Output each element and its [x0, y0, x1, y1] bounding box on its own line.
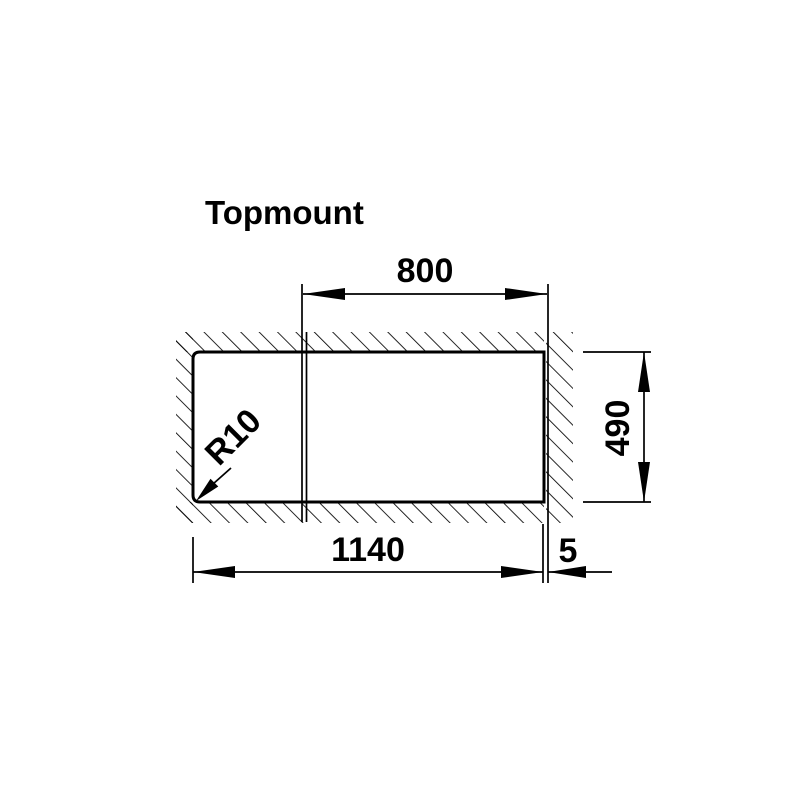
dim-1140-arrow-right [501, 566, 543, 578]
hatch-band-bottom [176, 502, 544, 523]
dim-490-arrow-bottom [638, 462, 650, 502]
dim-800-label: 800 [397, 252, 454, 290]
radius-label: R10 [198, 402, 269, 473]
dim-5-label: 5 [559, 532, 578, 570]
dim-800-arrow-left [303, 288, 345, 300]
dim-800-arrow-right [505, 288, 547, 300]
drawing-page: Topmount 800 490 1140 5 [0, 0, 800, 800]
dim-1140-label: 1140 [331, 531, 405, 569]
topmount-diagram: Topmount 800 490 1140 5 [0, 0, 800, 800]
dim-1140-arrow-left [193, 566, 235, 578]
dim-490-arrow-top [638, 352, 650, 392]
page-title: Topmount [205, 194, 364, 231]
hatch-band-top [176, 332, 544, 352]
hatch-band-right [546, 332, 573, 523]
hatch-band-left [176, 332, 193, 523]
dim-490-label: 490 [599, 400, 637, 457]
